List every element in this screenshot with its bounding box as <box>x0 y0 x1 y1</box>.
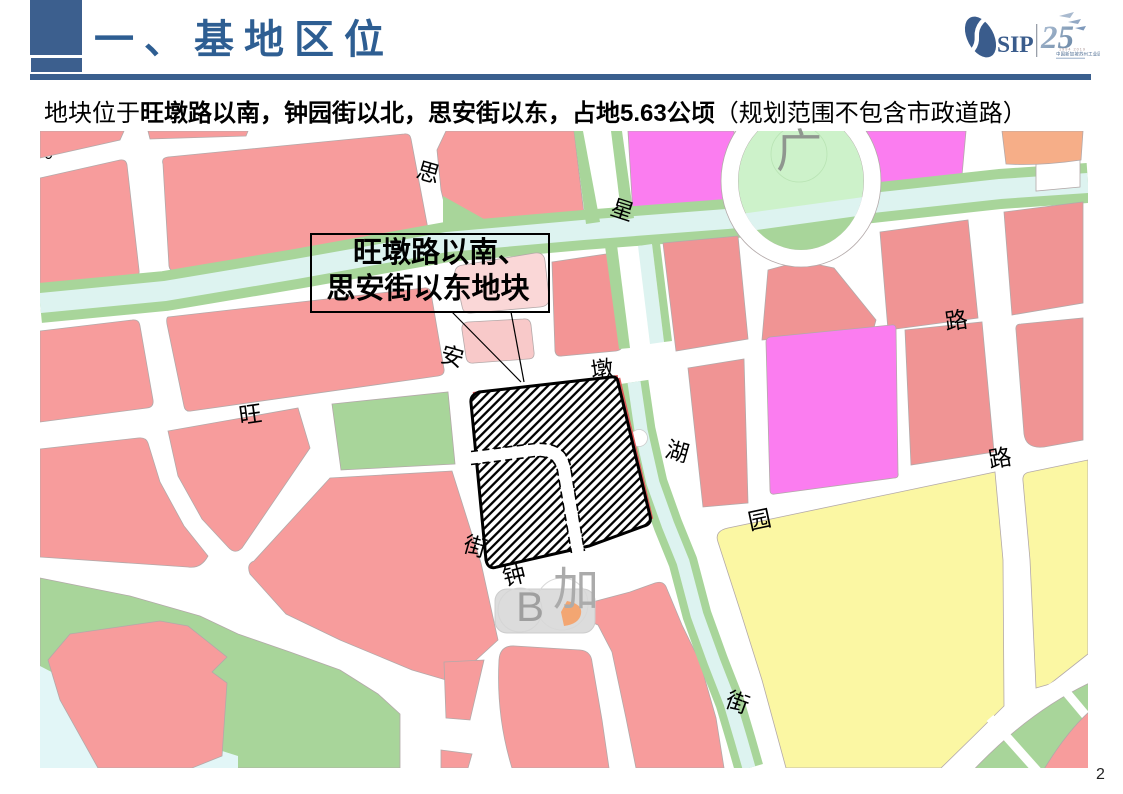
svg-text:钟: 钟 <box>500 560 529 591</box>
svg-text:B: B <box>516 583 544 630</box>
svg-text:园: 园 <box>746 505 774 535</box>
svg-text:加: 加 <box>553 563 599 615</box>
svg-text:墩: 墩 <box>589 355 615 384</box>
svg-text:旺墩路以南、: 旺墩路以南、 <box>353 236 527 269</box>
svg-text:路: 路 <box>986 443 1013 473</box>
svg-text:广: 广 <box>776 125 822 177</box>
svg-text:路: 路 <box>943 306 969 335</box>
svg-text:旺: 旺 <box>237 400 263 429</box>
svg-text:湖: 湖 <box>663 436 692 467</box>
svg-text:思安街以东地块: 思安街以东地块 <box>326 271 529 305</box>
